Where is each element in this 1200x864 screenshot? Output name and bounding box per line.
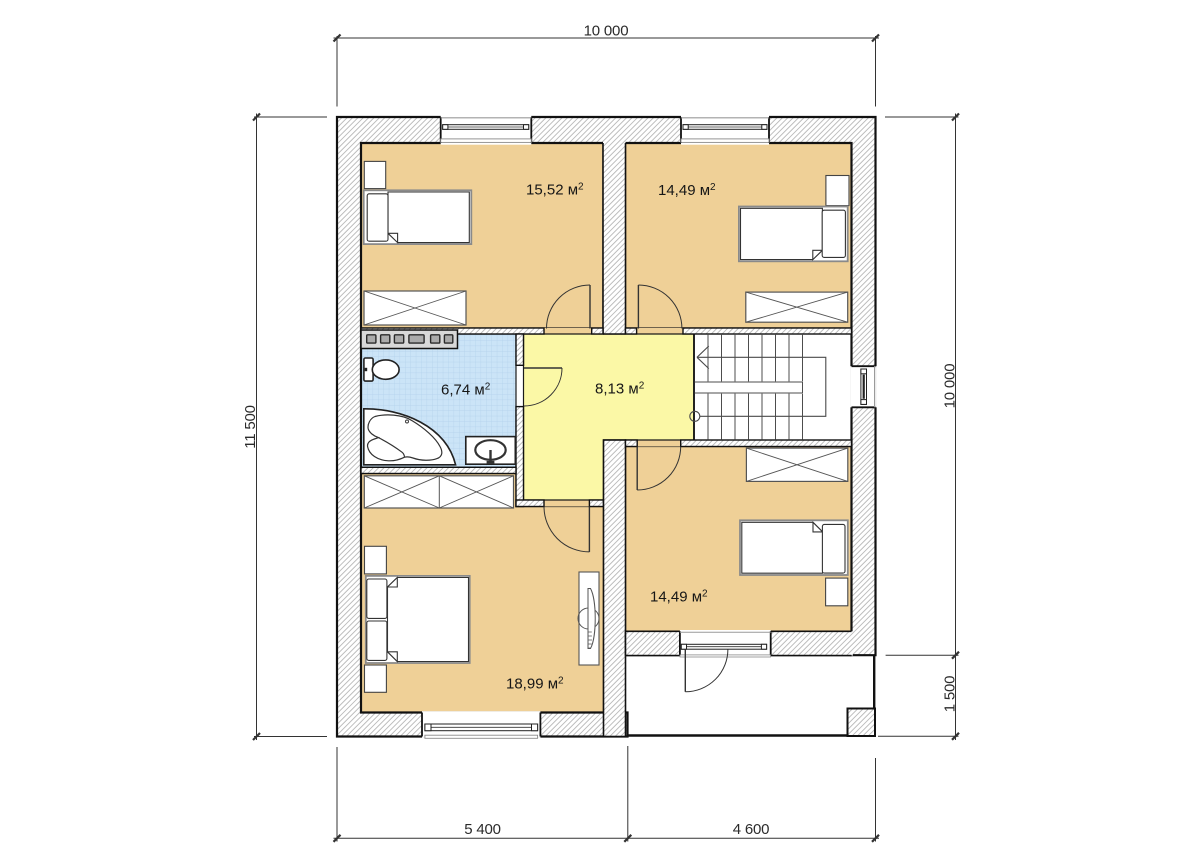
svg-text:8,13 м2: 8,13 м2: [595, 381, 645, 398]
svg-text:6,74 м2: 6,74 м2: [441, 382, 491, 399]
svg-text:14,49 м2: 14,49 м2: [658, 182, 716, 199]
svg-text:18,99 м2: 18,99 м2: [506, 676, 564, 693]
svg-text:11 500: 11 500: [242, 405, 259, 449]
svg-text:10 000: 10 000: [584, 23, 629, 40]
svg-text:1 500: 1 500: [941, 676, 958, 713]
svg-text:14,49 м2: 14,49 м2: [650, 589, 708, 606]
svg-text:4 600: 4 600: [733, 821, 770, 838]
svg-text:15,52 м2: 15,52 м2: [526, 182, 584, 199]
svg-text:10 000: 10 000: [941, 364, 958, 409]
svg-text:5 400: 5 400: [464, 821, 501, 838]
